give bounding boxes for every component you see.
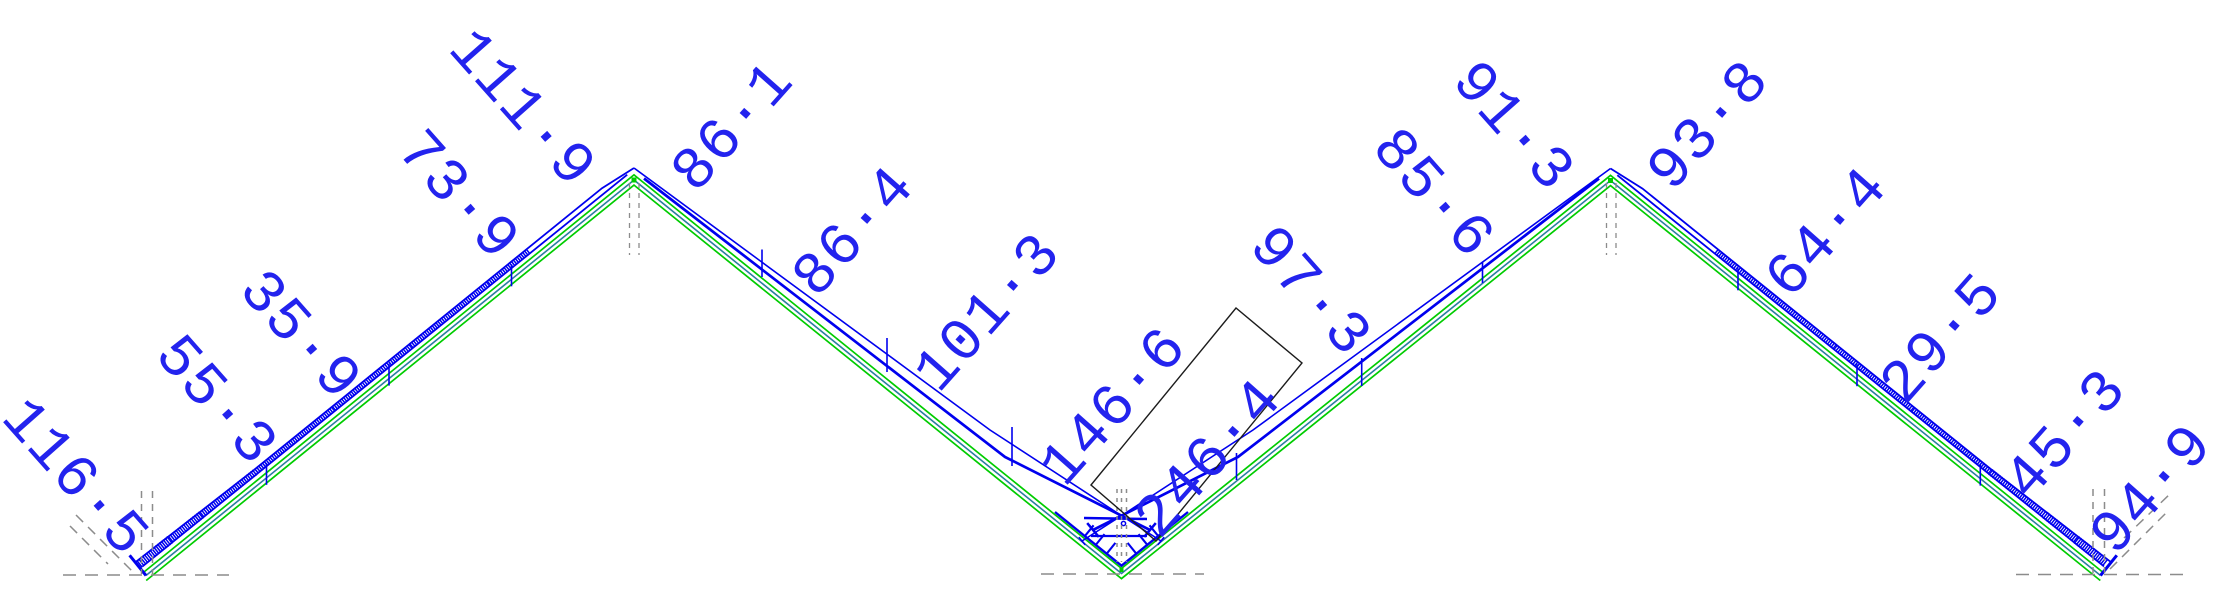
- svg-text:64·4: 64·4: [1753, 155, 1903, 312]
- svg-text:116·5: 116·5: [0, 386, 161, 572]
- svg-text:86·4: 86·4: [780, 154, 930, 311]
- svg-text:101·3: 101·3: [902, 221, 1077, 407]
- svg-text:93·8: 93·8: [1635, 48, 1785, 205]
- svg-text:97·3: 97·3: [1233, 214, 1383, 371]
- svg-text:86·1: 86·1: [659, 49, 809, 206]
